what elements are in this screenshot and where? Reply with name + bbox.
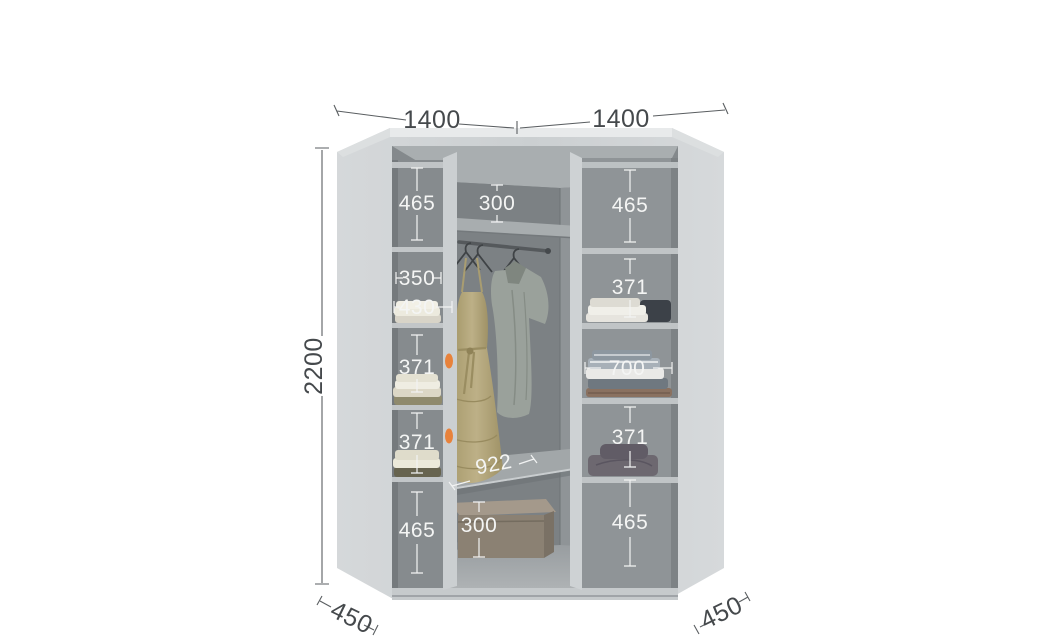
dim-left-width-350: 350 [396, 267, 441, 290]
dim-height-2200: 2200 [300, 148, 329, 584]
dim-label: 1400 [592, 105, 650, 133]
dim-label: 450 [326, 596, 377, 640]
dim-label: 465 [399, 192, 436, 215]
shelf-front [392, 405, 443, 410]
dim-label: 2200 [300, 337, 328, 395]
left-column-top-board [392, 162, 443, 168]
dim-label: 430 [399, 296, 436, 319]
dress-bodice [456, 292, 488, 350]
wardrobe-dimension-diagram: 465 350 430 371 371 465 300 922 [0, 0, 1062, 644]
shelf-front [582, 398, 678, 404]
dim-label: 450 [696, 591, 747, 635]
dim-label: 465 [612, 511, 649, 534]
dim-label: 371 [612, 426, 649, 449]
dim-label: 700 [609, 357, 646, 380]
right-divider-panel [570, 152, 582, 590]
right-column-top-board [582, 162, 678, 168]
rod-end-mount [545, 248, 551, 254]
folded-item [590, 298, 640, 307]
diagram-canvas: 465 350 430 371 371 465 300 922 [0, 0, 1062, 644]
orange-cap-upper [445, 354, 453, 369]
shelf-front [392, 323, 443, 328]
orange-cap-lower [445, 429, 453, 444]
dim-label: 465 [399, 519, 436, 542]
shelf-front [582, 323, 678, 329]
dim-label: 371 [399, 431, 436, 454]
dim-depth-left-450: 450 [317, 596, 378, 640]
shelf-front [392, 477, 443, 482]
dim-label: 371 [399, 356, 436, 379]
dim-depth-right-450: 450 [694, 591, 750, 635]
dress-belt-knot [467, 348, 474, 355]
dim-label: 300 [479, 192, 516, 215]
shelf-front [582, 248, 678, 254]
dim-label: 1400 [403, 106, 461, 134]
left-divider-panel [443, 152, 457, 590]
dim-label: 350 [399, 267, 436, 290]
dim-label: 300 [461, 514, 498, 537]
dim-label: 465 [612, 194, 649, 217]
base-plinth [392, 588, 678, 600]
left-column-inner-shadow [392, 160, 398, 588]
dim-label: 371 [612, 276, 649, 299]
shelf-front [392, 247, 443, 252]
box-side [544, 511, 554, 558]
folded-clothes-upper [586, 298, 671, 322]
